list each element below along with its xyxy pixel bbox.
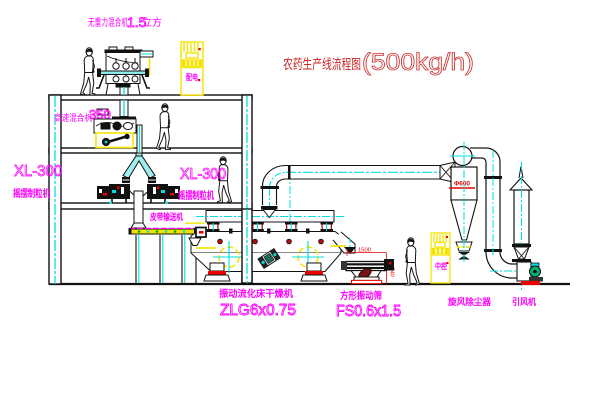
svg-text:振动流化床干燥机: 振动流化床干燥机 (219, 288, 293, 300)
svg-text:1500: 1500 (358, 248, 371, 254)
svg-text:无重力混合机: 无重力混合机 (88, 16, 128, 29)
svg-text:ZLG6x0.75: ZLG6x0.75 (220, 302, 296, 319)
svg-text:配电: 配电 (186, 72, 198, 82)
svg-text:皮带输送机: 皮带输送机 (149, 211, 183, 222)
svg-text:农药生产线流程图: 农药生产线流程图 (283, 57, 361, 72)
svg-text:高速混合机: 高速混合机 (54, 112, 92, 123)
svg-text:旋风除尘器: 旋风除尘器 (447, 296, 492, 307)
svg-text:中控: 中控 (435, 261, 447, 271)
svg-text:XL-300: XL-300 (180, 166, 226, 183)
svg-text:Φ600: Φ600 (454, 182, 471, 188)
svg-text:立方: 立方 (142, 16, 162, 29)
svg-text:摇摆制粒机: 摇摆制粒机 (13, 187, 50, 200)
svg-text:引风机: 引风机 (512, 296, 536, 307)
svg-text:方形振动筛: 方形振动筛 (340, 290, 382, 302)
svg-text:(500kg/h): (500kg/h) (362, 49, 474, 76)
svg-text:FS0.6x1.5: FS0.6x1.5 (336, 303, 401, 320)
svg-text:XL-300: XL-300 (14, 163, 62, 180)
svg-text:摇摆制粒机: 摇摆制粒机 (178, 189, 214, 202)
